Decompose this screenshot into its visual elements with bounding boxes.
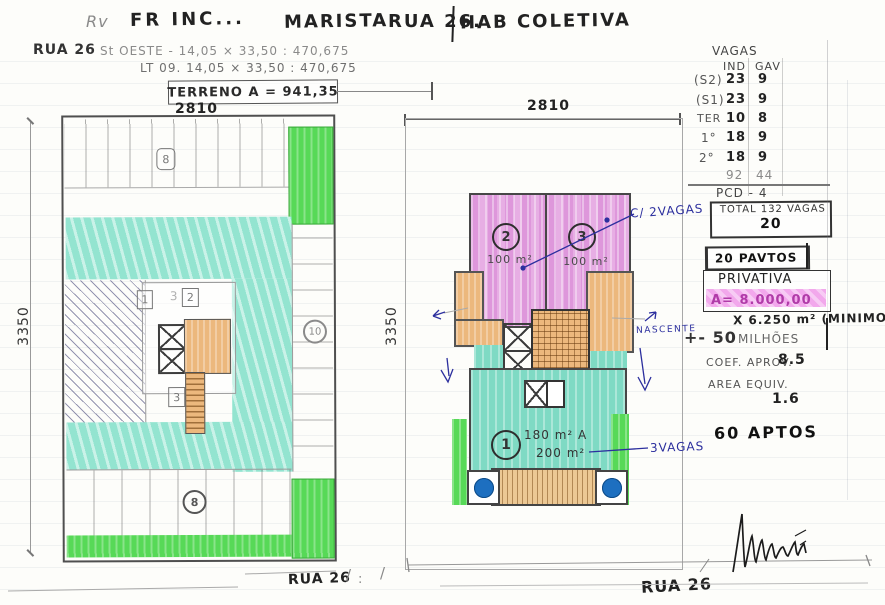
room-tag-2: 2 bbox=[182, 288, 199, 307]
parking-column-right bbox=[292, 224, 334, 472]
unit-3-area: 100 m² bbox=[556, 255, 616, 268]
coef-value: 8.5 bbox=[778, 352, 806, 368]
teal-band-top bbox=[66, 217, 292, 280]
vagas-row-level: (S2) bbox=[694, 73, 723, 87]
vagas-row-gav: 9 bbox=[758, 72, 768, 87]
vagas-row-ind: 18 bbox=[726, 130, 746, 145]
tree-icon bbox=[474, 478, 494, 498]
terreno-area: TERRENO A = 941,35 bbox=[167, 84, 338, 100]
parking-band-bottom bbox=[66, 469, 291, 538]
vagas-row-ind: 18 bbox=[726, 150, 746, 165]
vagas-row-gav: 9 bbox=[758, 130, 768, 145]
green-strip-bottom bbox=[67, 535, 292, 558]
right-plan-height-dim: 3350 bbox=[384, 306, 400, 346]
vagas-row-gav: 9 bbox=[758, 92, 768, 107]
parking-band-top bbox=[64, 119, 288, 189]
elevator-icon bbox=[158, 324, 186, 350]
scale-mark-slash: / bbox=[346, 566, 352, 584]
vagas-per-floor: 20 bbox=[760, 216, 782, 232]
unit-3-badge: 3 bbox=[568, 223, 596, 251]
stall-count-tag-top: 8 bbox=[156, 148, 175, 170]
paper-margin-line bbox=[847, 80, 848, 500]
room-tag-1: 1 bbox=[137, 290, 153, 309]
valor-suffix: MILHÕES bbox=[738, 332, 799, 346]
unit-1-badge: 1 bbox=[491, 430, 521, 460]
valor-prefix: +- 50 bbox=[684, 328, 737, 347]
site-sector-line: St OESTE - 14,05 × 33,50 : 470,675 bbox=[100, 44, 349, 58]
teal-band-bottom bbox=[66, 422, 292, 470]
vagas-row-gav: 9 bbox=[758, 150, 768, 165]
vagas-row-level: 2° bbox=[699, 151, 715, 165]
sketch-sheet: Rv FR INC... MARISTA RUA 26. HAB COLETIV… bbox=[0, 0, 885, 605]
room-tag-3-faint: 3 bbox=[170, 289, 179, 303]
vagas-total-ind: 92 bbox=[726, 168, 743, 182]
scale-mark-colon: : bbox=[358, 572, 363, 587]
total-vagas-box: TOTAL 132 VAGAS 20 bbox=[710, 200, 832, 238]
street-label-left: RUA 26 bbox=[288, 570, 351, 588]
table-divider bbox=[782, 58, 783, 196]
vagas-row-gav: 8 bbox=[758, 111, 768, 126]
privativa-label: PRIVATIVA bbox=[718, 272, 792, 287]
site-lot-line: LT 09. 14,05 × 33,50 : 470,675 bbox=[140, 61, 357, 75]
signature bbox=[733, 514, 806, 572]
total-vagas-line: TOTAL 132 VAGAS bbox=[720, 204, 826, 216]
core-orange-block bbox=[184, 319, 231, 374]
architect-initials: Rv bbox=[86, 12, 109, 31]
box-end-stroke bbox=[806, 243, 808, 269]
district-title: MARISTA bbox=[284, 10, 389, 33]
room-tag-3: 3 bbox=[168, 387, 185, 407]
privativa-box: PRIVATIVA A= 8.000,00 bbox=[703, 270, 831, 312]
unit-1-area-a: 180 m² A bbox=[524, 428, 587, 442]
project-type-title: HAB COLETIVA bbox=[460, 10, 631, 34]
vagas-row-level: (S1) bbox=[696, 93, 725, 107]
ramp-hatch-area bbox=[65, 280, 146, 422]
left-dim-line bbox=[30, 120, 31, 554]
right-plan-width-dim: 2810 bbox=[527, 98, 570, 114]
area-equiv-label: AREA EQUIV. bbox=[708, 378, 789, 391]
green-area-top-right bbox=[288, 127, 333, 225]
table-divider bbox=[748, 58, 749, 196]
stall-count-circle-bottom: 8 bbox=[183, 490, 207, 514]
vagas-row-ind: 23 bbox=[726, 72, 746, 87]
tree-icon bbox=[602, 478, 622, 498]
tree-box-left bbox=[467, 470, 500, 505]
pink-highlight: A= 8.000,00 bbox=[706, 289, 826, 307]
site-street-label: RUA 26 bbox=[33, 42, 96, 58]
pcd-note: PCD - 4 bbox=[716, 186, 767, 200]
area-equiv-value: 1.6 bbox=[772, 391, 800, 407]
vagas-row-ind: 10 bbox=[726, 111, 746, 126]
aptos-note: 60 APTOS bbox=[714, 422, 818, 443]
annotation-3vagas: 3VAGAS bbox=[650, 439, 705, 455]
balcony-slab-right bbox=[586, 271, 634, 353]
vagas-total-gav: 44 bbox=[756, 168, 773, 182]
minimo-note: X 6.250 m² (MINIMO) bbox=[733, 311, 885, 328]
deck-band bbox=[491, 468, 601, 506]
left-plan: 8 1 3 2 3 10 8 bbox=[61, 115, 337, 563]
pavtos-box: 20 PAVTOS bbox=[705, 245, 810, 270]
street-label-right: RUA 26 bbox=[641, 574, 713, 597]
vagas-row-level: 1° bbox=[701, 131, 717, 145]
shaft-icon bbox=[524, 380, 548, 408]
vagas-title: VAGAS bbox=[712, 44, 758, 58]
elevator-icon bbox=[503, 323, 533, 352]
unit-2-badge: 2 bbox=[492, 223, 520, 251]
stall-count-circle-right: 10 bbox=[303, 320, 327, 344]
pavtos-label: 20 PAVTOS bbox=[708, 251, 798, 266]
privativa-area: A= 8.000,00 bbox=[706, 293, 812, 308]
balcony-foot-left bbox=[454, 319, 504, 347]
green-strip-left bbox=[452, 419, 467, 505]
firm-title: FR INC... bbox=[130, 8, 245, 31]
vagas-row-ind: 23 bbox=[726, 92, 746, 107]
unit-1-area-b: 200 m² bbox=[536, 446, 585, 460]
stair-strip bbox=[185, 372, 205, 434]
unit-2-area: 100 m² bbox=[480, 253, 540, 266]
terreno-extension-line bbox=[336, 91, 432, 92]
right-plan-lot: 2 100 m² 3 100 m² 1 180 m² A 200 m² bbox=[405, 118, 683, 570]
elevator-icon bbox=[158, 348, 186, 374]
scale-mark-slash: / bbox=[380, 564, 386, 582]
green-block-bottom-right bbox=[291, 479, 334, 559]
vagas-row-level: TER bbox=[697, 112, 721, 125]
shaft-box bbox=[546, 380, 565, 408]
bracket-stroke bbox=[826, 318, 828, 350]
terreno-end-tick bbox=[431, 82, 433, 100]
tree-box-right bbox=[595, 470, 628, 505]
